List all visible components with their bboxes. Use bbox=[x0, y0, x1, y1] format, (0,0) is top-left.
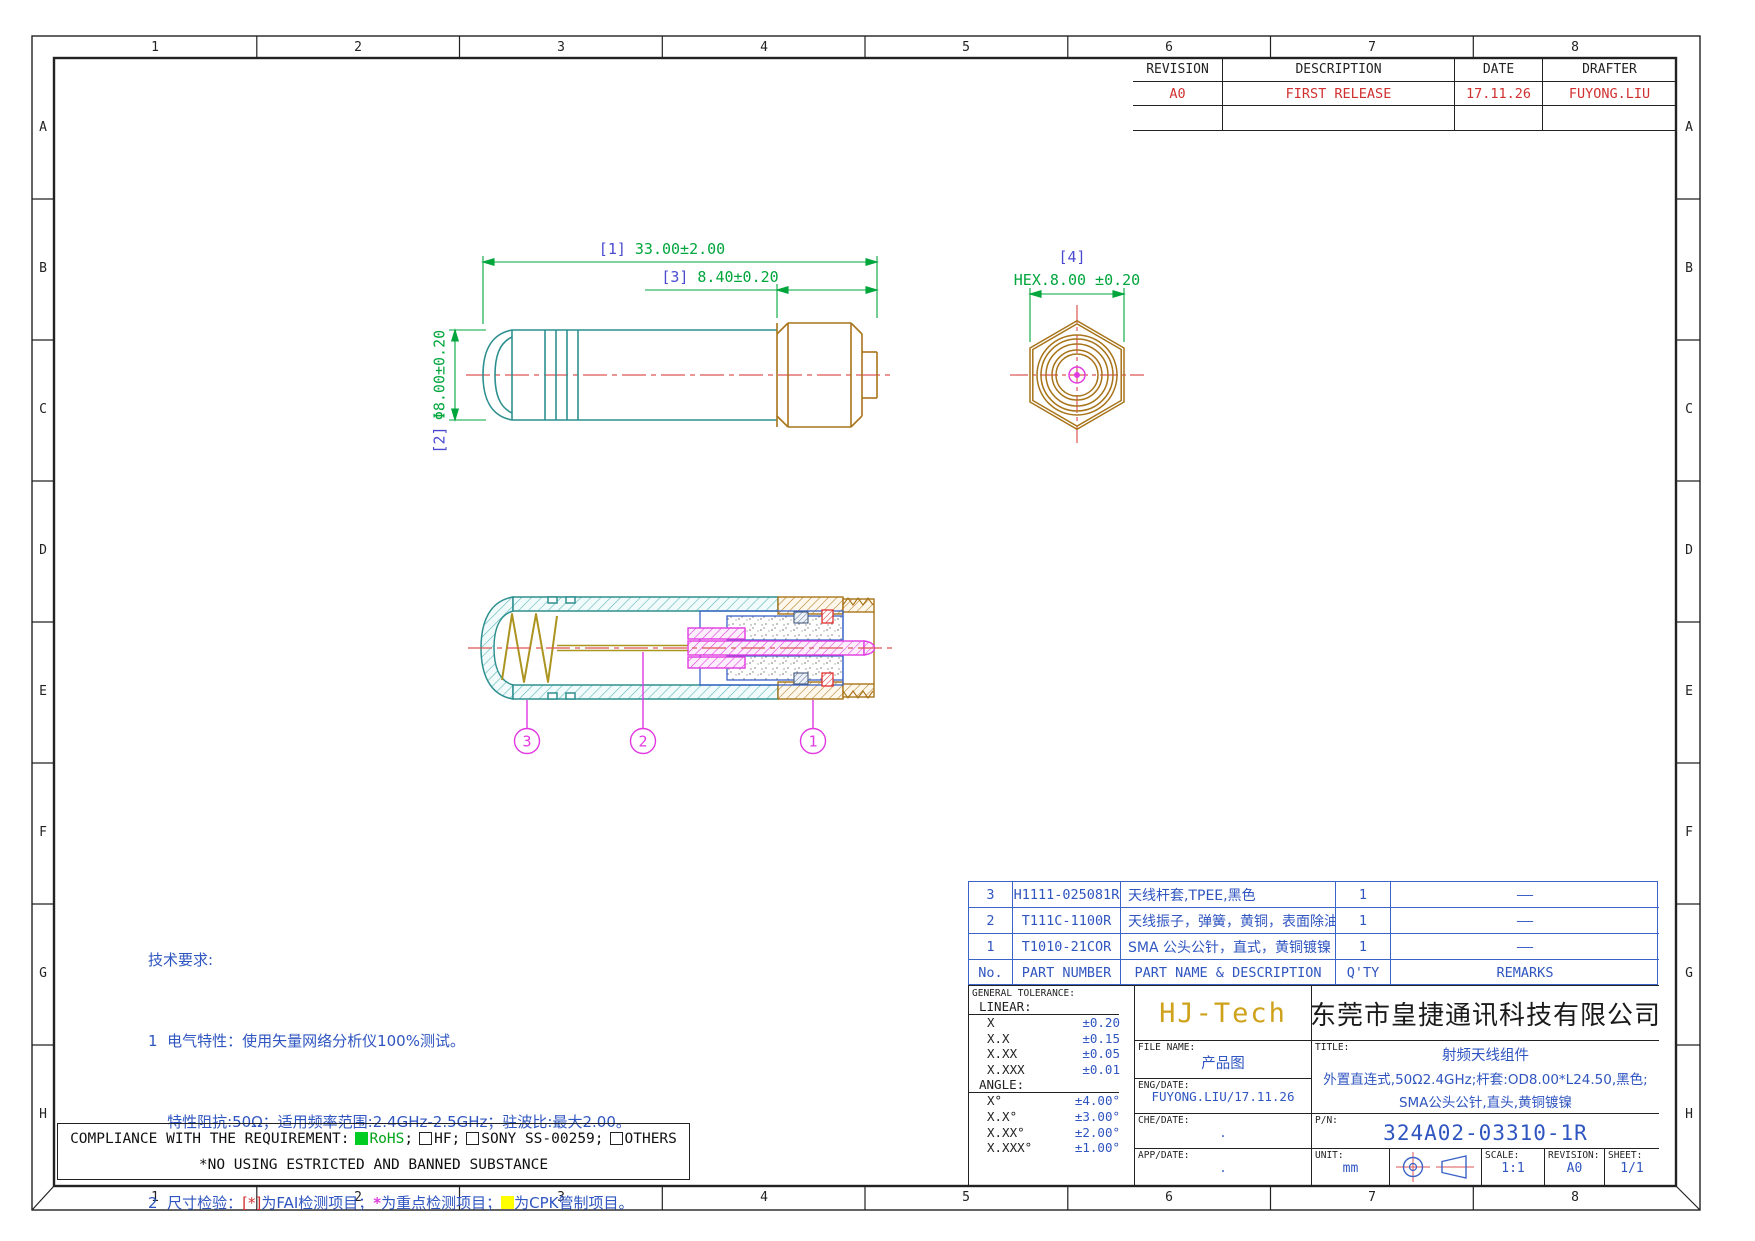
angle-label: ANGLE: bbox=[969, 1077, 1119, 1093]
frame-col-label: 1 bbox=[140, 40, 170, 55]
oring-upper bbox=[822, 610, 833, 623]
frame-row-label: G bbox=[36, 966, 50, 981]
frame-col-label: 5 bbox=[951, 40, 981, 55]
empty-cell bbox=[1223, 106, 1455, 131]
company-logo: HJ-Tech bbox=[1159, 998, 1287, 1029]
frame-row-label: F bbox=[1682, 825, 1696, 840]
eng-date-cell: ENG/DATE: FUYONG.LIU/17.11.26 bbox=[1134, 1078, 1311, 1113]
balloon-2: 2 bbox=[638, 733, 647, 751]
bom-part-number: T111C-1100R bbox=[1013, 908, 1121, 934]
description-header: DESCRIPTION bbox=[1223, 58, 1455, 82]
bom-part-number: T1010-21COR bbox=[1013, 934, 1121, 960]
title-line3: SMA公头公针,直头,黄铜镀镍 bbox=[1312, 1091, 1659, 1111]
frame-col-label: 6 bbox=[1154, 1190, 1184, 1205]
side-view: [1]33.00±2.00 [3]8.40±0.20 Φ8.00±0.20 [2… bbox=[431, 240, 894, 454]
bom-no: 1 bbox=[969, 934, 1013, 960]
bom-header-qty: Q'TY bbox=[1336, 960, 1391, 986]
frame-row-label: H bbox=[1682, 1107, 1696, 1122]
unit-value: mm bbox=[1312, 1161, 1389, 1176]
rohs-checkbox-checked bbox=[355, 1132, 368, 1145]
file-name-cell: FILE NAME: 产品图 bbox=[1134, 1040, 1311, 1078]
frame-col-label: 7 bbox=[1357, 1190, 1387, 1205]
frame-row-label: E bbox=[36, 684, 50, 699]
frame-col-label: 8 bbox=[1560, 40, 1590, 55]
bom-no: 2 bbox=[969, 908, 1013, 934]
revision-cell: REVISION: A0 bbox=[1544, 1148, 1604, 1186]
bom-header-description: PART NAME & DESCRIPTION bbox=[1121, 960, 1336, 986]
file-name-value: 产品图 bbox=[1135, 1052, 1311, 1073]
scale-cell: SCALE: 1:1 bbox=[1481, 1148, 1544, 1186]
frame-row-label: F bbox=[36, 825, 50, 840]
description-value: FIRST RELEASE bbox=[1223, 82, 1455, 106]
bom-part-number: H1111-025081R bbox=[1013, 882, 1121, 908]
bom-remarks: —— bbox=[1391, 934, 1659, 960]
company-name: 东莞市皇捷通讯科技有限公司 bbox=[1310, 995, 1661, 1032]
sheet-cell: SHEET: 1/1 bbox=[1604, 1148, 1659, 1186]
bom-table: 3 H1111-025081R 天线杆套,TPEE,黑色 1 —— 2 T111… bbox=[968, 881, 1658, 985]
che-date-cell: CHE/DATE: . bbox=[1134, 1113, 1311, 1148]
projection-symbol-cell bbox=[1389, 1148, 1481, 1186]
frame-row-label: D bbox=[1682, 543, 1696, 558]
title-cell: TITLE: 射频天线组件 外置直连式,50Ω2.4GHz;杆套:OD8.00*… bbox=[1311, 1040, 1659, 1113]
bom-qty: 1 bbox=[1336, 882, 1391, 908]
dim2-ref: [2] bbox=[431, 426, 449, 453]
dim4-value: HEX.8.00 ±0.20 bbox=[1014, 271, 1140, 289]
revision-header: REVISION bbox=[1133, 58, 1223, 82]
unit-cell: UNIT: mm bbox=[1311, 1148, 1389, 1186]
pn-cell: P/N: 324A02-03310-1R bbox=[1311, 1113, 1659, 1148]
frame-col-label: 3 bbox=[546, 40, 576, 55]
linear-label: LINEAR: bbox=[969, 999, 1119, 1015]
tolerance-heading: GENERAL TOLERANCE: bbox=[969, 986, 1134, 999]
frame-row-label: A bbox=[36, 120, 50, 135]
frame-col-label: 4 bbox=[749, 40, 779, 55]
note-1: 1 电气特性：使用矢量网络分析仪100%测试。 bbox=[148, 1028, 848, 1055]
app-date-value: . bbox=[1135, 1161, 1311, 1175]
empty-cell bbox=[1543, 106, 1676, 131]
key-item-mark: * bbox=[373, 1194, 381, 1212]
sony-checkbox bbox=[466, 1132, 479, 1145]
title-line2: 外置直连式,50Ω2.4GHz;杆套:OD8.00*L24.50,黑色; bbox=[1312, 1068, 1659, 1088]
bom-header-remarks: REMARKS bbox=[1391, 960, 1659, 986]
tolerance-box: GENERAL TOLERANCE: LINEAR: X±0.20 X.X±0.… bbox=[969, 985, 1134, 1186]
note-2: 2 尺寸检验：[*]为FAI检测项目；*为重点检测项目；为CPK管制项目。 bbox=[148, 1190, 848, 1217]
bom-qty: 1 bbox=[1336, 908, 1391, 934]
cpk-mark bbox=[501, 1196, 514, 1209]
dim1-label: [1]33.00±2.00 bbox=[599, 240, 725, 258]
che-date-value: . bbox=[1135, 1126, 1311, 1140]
title-block: GENERAL TOLERANCE: LINEAR: X±0.20 X.X±0.… bbox=[968, 985, 1658, 1186]
drafter-header: DRAFTER bbox=[1543, 58, 1676, 82]
dim3-label: [3]8.40±0.20 bbox=[661, 268, 778, 286]
dim4-ref: [4] bbox=[1058, 248, 1085, 266]
company-cell: 东莞市皇捷通讯科技有限公司 bbox=[1311, 985, 1659, 1040]
compliance-box: COMPLIANCE WITH THE REQUIREMENT:RoHS;HF;… bbox=[57, 1123, 690, 1180]
bom-qty: 1 bbox=[1336, 934, 1391, 960]
revision-value: A0 bbox=[1545, 1161, 1604, 1176]
bom-description: 天线杆套,TPEE,黑色 bbox=[1121, 882, 1336, 908]
scale-value: 1:1 bbox=[1482, 1161, 1544, 1176]
bom-description: SMA 公头公针，直式，黄铜镀镍 bbox=[1121, 934, 1336, 960]
oring-lower bbox=[822, 673, 833, 686]
empty-cell bbox=[1133, 106, 1223, 131]
frame-col-label: 7 bbox=[1357, 40, 1387, 55]
frame-col-label: 5 bbox=[951, 1190, 981, 1205]
eng-date-value: FUYONG.LIU/17.11.26 bbox=[1135, 1089, 1311, 1104]
frame-col-label: 2 bbox=[343, 40, 373, 55]
frame-row-label: C bbox=[36, 402, 50, 417]
others-checkbox bbox=[610, 1132, 623, 1145]
bom-header-part-number: PART NUMBER bbox=[1013, 960, 1121, 986]
pn-value: 324A02-03310-1R bbox=[1312, 1121, 1659, 1145]
bom-header-no: No. bbox=[969, 960, 1013, 986]
drafter-value: FUYONG.LIU bbox=[1543, 82, 1676, 106]
hf-checkbox bbox=[419, 1132, 432, 1145]
section-view: 3 2 1 bbox=[468, 597, 893, 754]
bom-remarks: —— bbox=[1391, 882, 1659, 908]
bom-no: 3 bbox=[969, 882, 1013, 908]
date-value: 17.11.26 bbox=[1455, 82, 1543, 106]
frame-row-label: A bbox=[1682, 120, 1696, 135]
empty-cell bbox=[1455, 106, 1543, 131]
projection-symbol bbox=[1390, 1149, 1480, 1185]
balloon-1: 1 bbox=[808, 733, 817, 751]
frame-row-label: D bbox=[36, 543, 50, 558]
balloon-3: 3 bbox=[522, 733, 531, 751]
app-date-cell: APP/DATE: . bbox=[1134, 1148, 1311, 1186]
compliance-line2: *NO USING ESTRICTED AND BANNED SUBSTANCE bbox=[58, 1152, 689, 1178]
title-line1: 射频天线组件 bbox=[1312, 1044, 1659, 1065]
revision-value: A0 bbox=[1133, 82, 1223, 106]
dim2-value: Φ8.00±0.20 bbox=[431, 330, 449, 420]
frame-row-label: B bbox=[36, 261, 50, 276]
frame-row-label: C bbox=[1682, 402, 1696, 417]
logo-cell: HJ-Tech bbox=[1134, 985, 1311, 1040]
compliance-line1: COMPLIANCE WITH THE REQUIREMENT:RoHS;HF;… bbox=[58, 1126, 689, 1152]
frame-col-label: 8 bbox=[1560, 1190, 1590, 1205]
date-header: DATE bbox=[1455, 58, 1543, 82]
gasket-upper bbox=[794, 612, 808, 623]
sheet-value: 1/1 bbox=[1605, 1161, 1659, 1176]
gasket-lower bbox=[794, 673, 808, 684]
hex-end-view: [4] HEX.8.00 ±0.20 bbox=[1010, 248, 1144, 445]
frame-col-label: 6 bbox=[1154, 40, 1184, 55]
notes-title: 技术要求: bbox=[148, 947, 848, 974]
frame-row-label: G bbox=[1682, 966, 1696, 981]
bom-remarks: —— bbox=[1391, 908, 1659, 934]
frame-row-label: B bbox=[1682, 261, 1696, 276]
drawing-sheet: [1]33.00±2.00 [3]8.40±0.20 Φ8.00±0.20 [2… bbox=[0, 0, 1755, 1241]
technical-notes: 技术要求: 1 电气特性：使用矢量网络分析仪100%测试。 特性阻抗:50Ω；适… bbox=[148, 893, 848, 1241]
bom-description: 天线振子，弹簧，黄铜，表面除油 bbox=[1121, 908, 1336, 934]
frame-row-label: H bbox=[36, 1107, 50, 1122]
fai-mark: [*] bbox=[242, 1194, 261, 1212]
revision-table: REVISION DESCRIPTION DATE DRAFTER A0 FIR… bbox=[1133, 58, 1676, 131]
frame-row-label: E bbox=[1682, 684, 1696, 699]
